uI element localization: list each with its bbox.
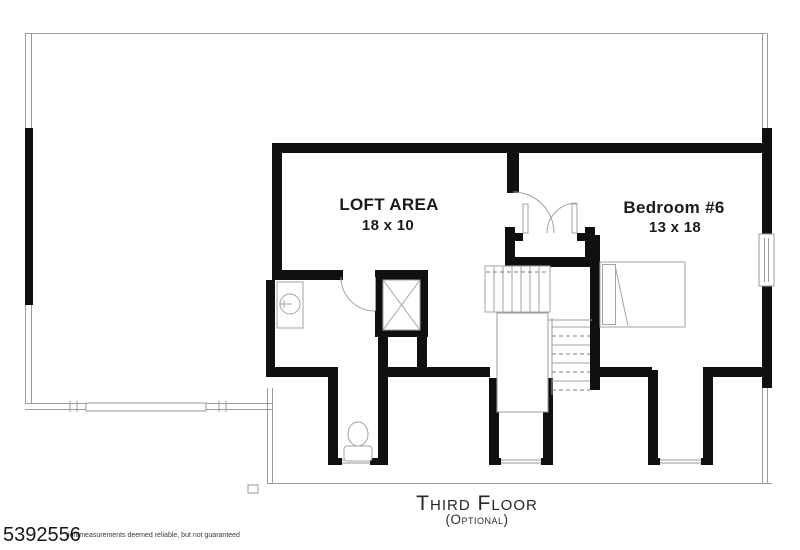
side-window xyxy=(759,234,774,286)
loft-area-dimensions: 18 x 10 xyxy=(362,217,414,234)
door-jamb-right xyxy=(577,233,595,241)
bedroom6-dimensions: 13 x 18 xyxy=(649,219,701,236)
stair-front-wall xyxy=(385,367,490,377)
right-wall-upper xyxy=(762,128,772,237)
bedroom-bottom-wall-left xyxy=(595,367,652,377)
loft-area-label: LOFT AREA xyxy=(339,195,438,215)
attic-left-wall xyxy=(25,128,33,305)
loft-left-wall xyxy=(272,143,282,280)
stairs xyxy=(485,266,592,412)
stairwell-opening xyxy=(497,313,548,412)
top-wall xyxy=(272,143,772,153)
disclaimer-text: tion/measurements deemed reliable, but n… xyxy=(66,532,240,539)
bath-left-wall xyxy=(266,280,275,377)
sink-icon xyxy=(277,282,303,328)
bedroom6-label: Bedroom #6 xyxy=(623,198,724,218)
floor-subtitle: (Optional) xyxy=(445,512,508,527)
toilet-alcove-right-wall xyxy=(378,337,388,465)
toilet-alcove-left-wall xyxy=(328,377,338,465)
toilet-icon xyxy=(344,422,372,461)
right-dormer-right-wall xyxy=(703,370,713,465)
bedroom-bottom-wall-right xyxy=(703,367,772,377)
listing-number: 5392556 xyxy=(3,524,81,547)
bath-bottom-wall xyxy=(266,367,338,377)
right-dormer-left-wall xyxy=(648,370,658,465)
bed-icon xyxy=(600,262,685,327)
bath-top-wall xyxy=(272,270,343,280)
attic-window xyxy=(70,401,226,412)
dormer-windows xyxy=(342,460,701,463)
bathroom-door xyxy=(341,277,376,311)
floor-plan-drawing xyxy=(0,0,800,550)
hall-wall-stub xyxy=(507,143,519,193)
floor-plan: LOFT AREA 18 x 10 Bedroom #6 13 x 18 Thi… xyxy=(0,0,800,550)
closet xyxy=(375,270,428,337)
eave-post-marker xyxy=(248,485,258,493)
double-door xyxy=(513,192,577,233)
door-jamb-left xyxy=(505,233,523,241)
